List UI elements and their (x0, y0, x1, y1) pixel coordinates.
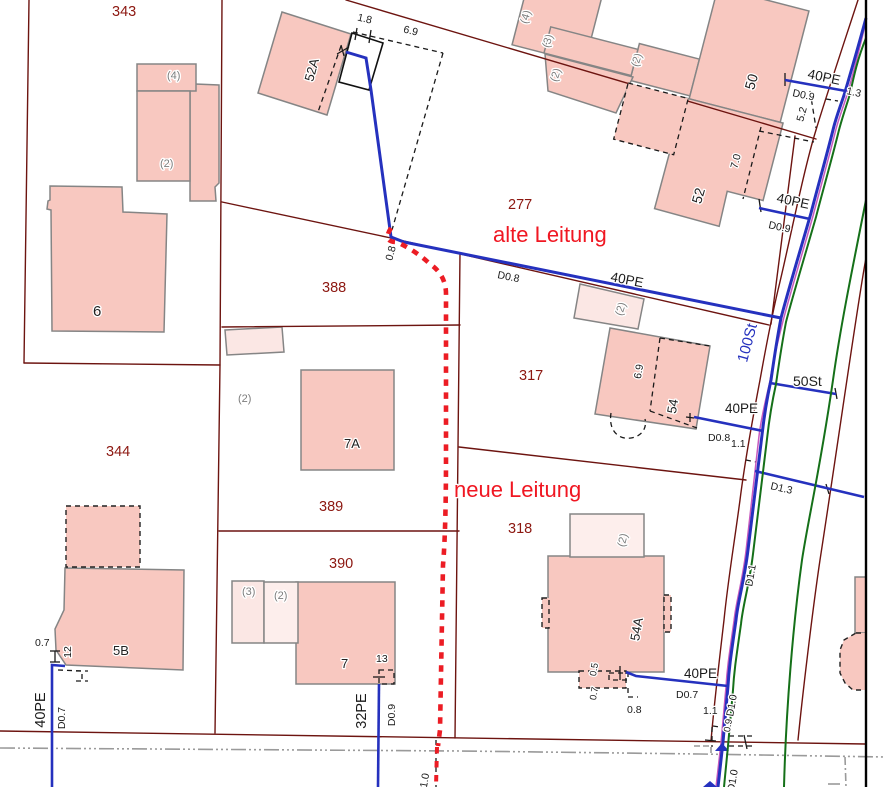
svg-text:D0.9: D0.9 (386, 704, 398, 726)
svg-text:318: 318 (508, 521, 532, 537)
svg-text:D0.8: D0.8 (708, 432, 730, 444)
svg-text:54: 54 (664, 398, 681, 415)
svg-text:6: 6 (93, 303, 101, 320)
svg-text:D0.7: D0.7 (676, 689, 698, 701)
svg-text:(3): (3) (242, 586, 255, 598)
svg-text:388: 388 (322, 280, 346, 296)
svg-text:40PE: 40PE (33, 692, 49, 728)
svg-text:390: 390 (329, 556, 353, 572)
svg-text:32PE: 32PE (354, 693, 370, 729)
svg-text:(2): (2) (238, 393, 251, 405)
svg-text:344: 344 (106, 444, 130, 460)
svg-text:0.9: 0.9 (722, 718, 735, 733)
svg-text:1.1: 1.1 (703, 705, 718, 717)
svg-text:0.8: 0.8 (627, 704, 642, 716)
svg-text:5B: 5B (113, 643, 129, 658)
svg-text:40PE: 40PE (725, 401, 758, 416)
svg-text:389: 389 (319, 499, 343, 515)
svg-text:D0.7: D0.7 (56, 707, 68, 729)
svg-text:277: 277 (508, 197, 532, 213)
svg-text:(4): (4) (167, 70, 180, 82)
svg-text:343: 343 (112, 4, 136, 20)
svg-text:7: 7 (341, 656, 348, 671)
svg-text:(2): (2) (274, 590, 287, 602)
svg-text:50St: 50St (793, 373, 822, 389)
svg-text:317: 317 (519, 368, 543, 384)
svg-text:13: 13 (376, 653, 388, 665)
svg-text:0.7: 0.7 (35, 637, 50, 649)
svg-text:neue Leitung: neue Leitung (454, 477, 581, 502)
svg-text:0.5: 0.5 (588, 662, 601, 677)
svg-text:12: 12 (62, 646, 74, 658)
svg-text:0.7: 0.7 (588, 686, 601, 701)
svg-text:alte Leitung: alte Leitung (493, 222, 607, 247)
svg-text:6.9: 6.9 (632, 363, 646, 380)
svg-text:(2): (2) (160, 158, 173, 170)
svg-text:7A: 7A (344, 436, 360, 451)
svg-text:1.0: 1.0 (418, 772, 432, 787)
svg-text:1.1: 1.1 (731, 438, 746, 450)
svg-text:40PE: 40PE (684, 666, 717, 681)
